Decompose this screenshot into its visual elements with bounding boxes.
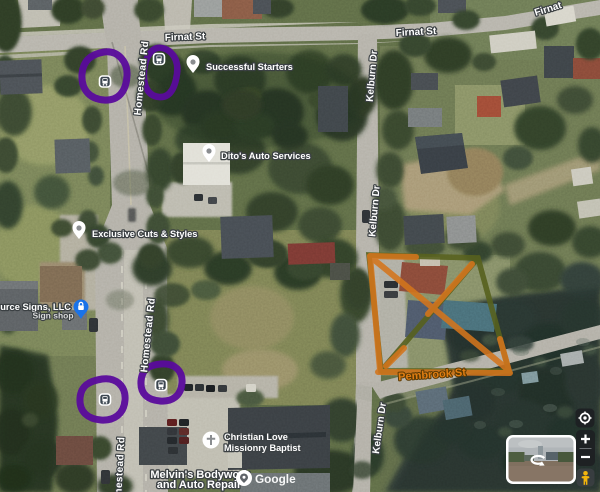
svg-text:and Auto Repair: and Auto Repair bbox=[157, 479, 242, 491]
svg-text:Google: Google bbox=[255, 472, 296, 486]
svg-text:Dito's Auto Services: Dito's Auto Services bbox=[221, 151, 311, 161]
svg-text:Firnat St: Firnat St bbox=[395, 26, 437, 39]
svg-text:Christian Love: Christian Love bbox=[224, 432, 288, 442]
svg-text:Missionry Baptist: Missionry Baptist bbox=[224, 443, 301, 453]
svg-text:Sign shop: Sign shop bbox=[32, 311, 73, 321]
svg-text:Successful Starters: Successful Starters bbox=[206, 62, 293, 72]
svg-text:Firnat St: Firnat St bbox=[165, 31, 207, 43]
svg-text:Exclusive Cuts & Styles: Exclusive Cuts & Styles bbox=[92, 229, 197, 239]
